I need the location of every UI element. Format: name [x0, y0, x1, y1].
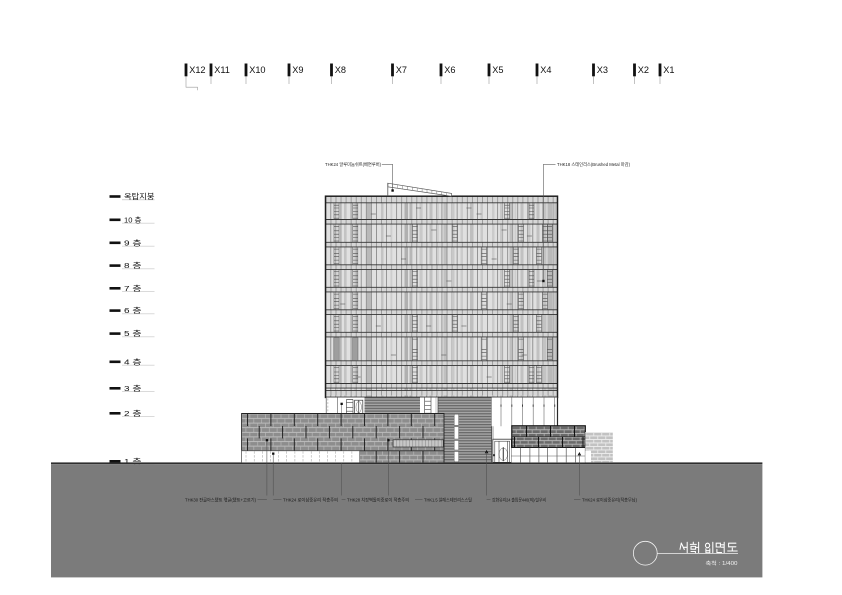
svg-text:X11: X11 [214, 65, 230, 75]
svg-text:THK24 로이삼중유리 적층주의: THK24 로이삼중유리 적층주의 [283, 497, 338, 504]
svg-text:X2: X2 [638, 65, 649, 75]
svg-text:4 층: 4 층 [124, 357, 142, 366]
svg-text:THK28 치장벽돌이중로이 적층주의: THK28 치장벽돌이중로이 적층주의 [347, 497, 409, 504]
svg-text:X10: X10 [249, 65, 265, 75]
svg-text:9 층: 9 층 [124, 238, 142, 247]
svg-text:2 층: 2 층 [124, 409, 142, 418]
svg-text:7 층: 7 층 [124, 284, 142, 293]
svg-text:X5: X5 [492, 65, 503, 75]
svg-text:THK24 알루미늄쉬트(배면루버): THK24 알루미늄쉬트(배면루버) [325, 161, 381, 168]
svg-text:X6: X6 [444, 65, 455, 75]
svg-text:X3: X3 [597, 65, 608, 75]
svg-text:8 층: 8 층 [124, 261, 142, 270]
svg-text:X1: X1 [663, 65, 674, 75]
svg-text:X9: X9 [292, 65, 303, 75]
svg-text:THK1.5 알레스테인리스스틸: THK1.5 알레스테인리스스틸 [424, 497, 472, 504]
svg-text:축척 : 1/400: 축척 : 1/400 [706, 560, 738, 567]
svg-text:6 층: 6 층 [124, 306, 142, 315]
svg-text:10 층: 10 층 [124, 215, 142, 224]
svg-text:THK18 스테인리스(Brushed Metal 마감): THK18 스테인리스(Brushed Metal 마감) [557, 161, 630, 168]
svg-text:THK24 로이삼중유리(적층무님): THK24 로이삼중유리(적층무님) [582, 497, 637, 504]
svg-text:X12: X12 [189, 65, 205, 75]
svg-text:X8: X8 [335, 65, 346, 75]
svg-text:THK30 잔골아스텘트 앣글(텘트+고르기): THK30 잔골아스텘트 앣글(텘트+고르기) [185, 497, 256, 504]
svg-text:X4: X4 [540, 65, 551, 75]
svg-text:3 층: 3 층 [124, 384, 142, 393]
svg-text:옥탑지붕: 옥탑지붕 [124, 192, 155, 201]
svg-text:5 층: 5 층 [124, 329, 142, 338]
svg-text:X7: X7 [396, 65, 407, 75]
svg-text:강화유리24 출입문440(의)/설우비: 강화유리24 출입문440(의)/설우비 [492, 497, 546, 504]
